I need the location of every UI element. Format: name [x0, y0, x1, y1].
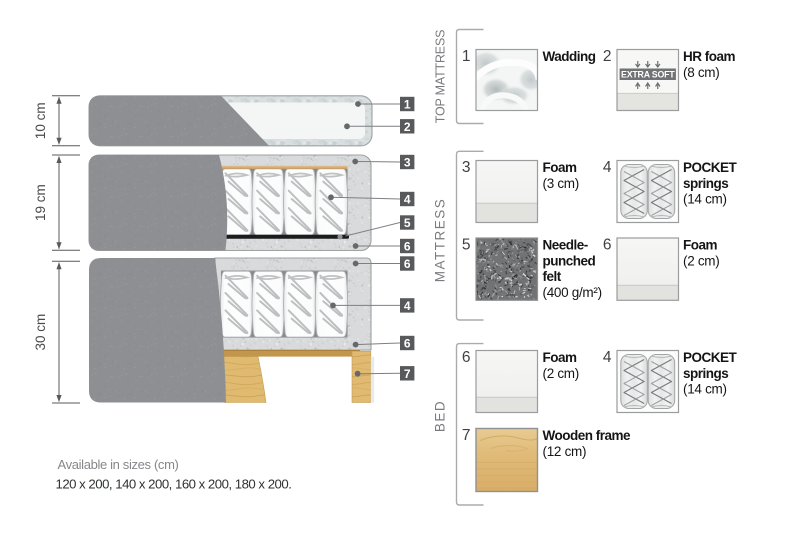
svg-text:4: 4 [404, 193, 411, 207]
svg-text:7: 7 [462, 427, 471, 444]
svg-text:4: 4 [404, 299, 411, 313]
svg-text:2: 2 [603, 48, 612, 65]
svg-text:1: 1 [404, 98, 411, 112]
svg-text:Foam: Foam [543, 160, 578, 175]
svg-text:6: 6 [404, 257, 411, 271]
svg-text:(2 cm): (2 cm) [543, 366, 579, 381]
svg-text:10 cm: 10 cm [33, 102, 48, 139]
svg-text:POCKET: POCKET [683, 350, 738, 365]
svg-text:springs: springs [683, 366, 728, 381]
svg-text:HR foam: HR foam [683, 49, 735, 64]
svg-text:(14 cm): (14 cm) [683, 192, 727, 207]
svg-text:6: 6 [462, 349, 471, 366]
svg-text:19 cm: 19 cm [33, 184, 48, 221]
svg-text:4: 4 [603, 159, 612, 176]
svg-text:Wadding: Wadding [543, 49, 596, 64]
svg-text:7: 7 [404, 367, 411, 381]
svg-text:Needle-: Needle- [543, 238, 588, 253]
svg-text:Foam: Foam [683, 238, 718, 253]
svg-text:Foam: Foam [543, 350, 578, 365]
svg-text:(2 cm): (2 cm) [683, 253, 719, 268]
svg-text:(400 g/m²): (400 g/m²) [543, 285, 602, 300]
svg-text:(3 cm): (3 cm) [543, 176, 579, 191]
svg-text:2: 2 [404, 120, 411, 134]
svg-text:6: 6 [404, 337, 411, 351]
svg-text:3: 3 [462, 159, 471, 176]
svg-text:(14 cm): (14 cm) [683, 382, 727, 397]
svg-text:EXTRA SOFT: EXTRA SOFT [621, 70, 675, 80]
svg-text:punched: punched [543, 253, 596, 268]
svg-text:Wooden frame: Wooden frame [543, 428, 632, 443]
svg-text:6: 6 [603, 237, 612, 254]
svg-text:4: 4 [603, 349, 612, 366]
svg-text:BED: BED [433, 400, 448, 432]
svg-text:felt: felt [543, 269, 562, 284]
svg-text:POCKET: POCKET [683, 160, 738, 175]
svg-text:120 x 200, 140 x 200, 160 x 20: 120 x 200, 140 x 200, 160 x 200, 180 x 2… [56, 477, 292, 492]
svg-text:MATTRESS: MATTRESS [433, 198, 448, 283]
svg-text:Available in sizes (cm): Available in sizes (cm) [58, 457, 179, 472]
svg-text:springs: springs [683, 176, 728, 191]
svg-text:3: 3 [404, 156, 411, 170]
svg-text:5: 5 [462, 237, 471, 254]
svg-text:6: 6 [404, 240, 411, 254]
svg-text:(8 cm): (8 cm) [683, 65, 719, 80]
svg-text:30 cm: 30 cm [33, 314, 48, 351]
svg-text:1: 1 [462, 48, 471, 65]
svg-text:5: 5 [404, 216, 411, 230]
svg-text:TOP MATTRESS: TOP MATTRESS [434, 30, 448, 123]
svg-text:(12 cm): (12 cm) [543, 444, 587, 459]
